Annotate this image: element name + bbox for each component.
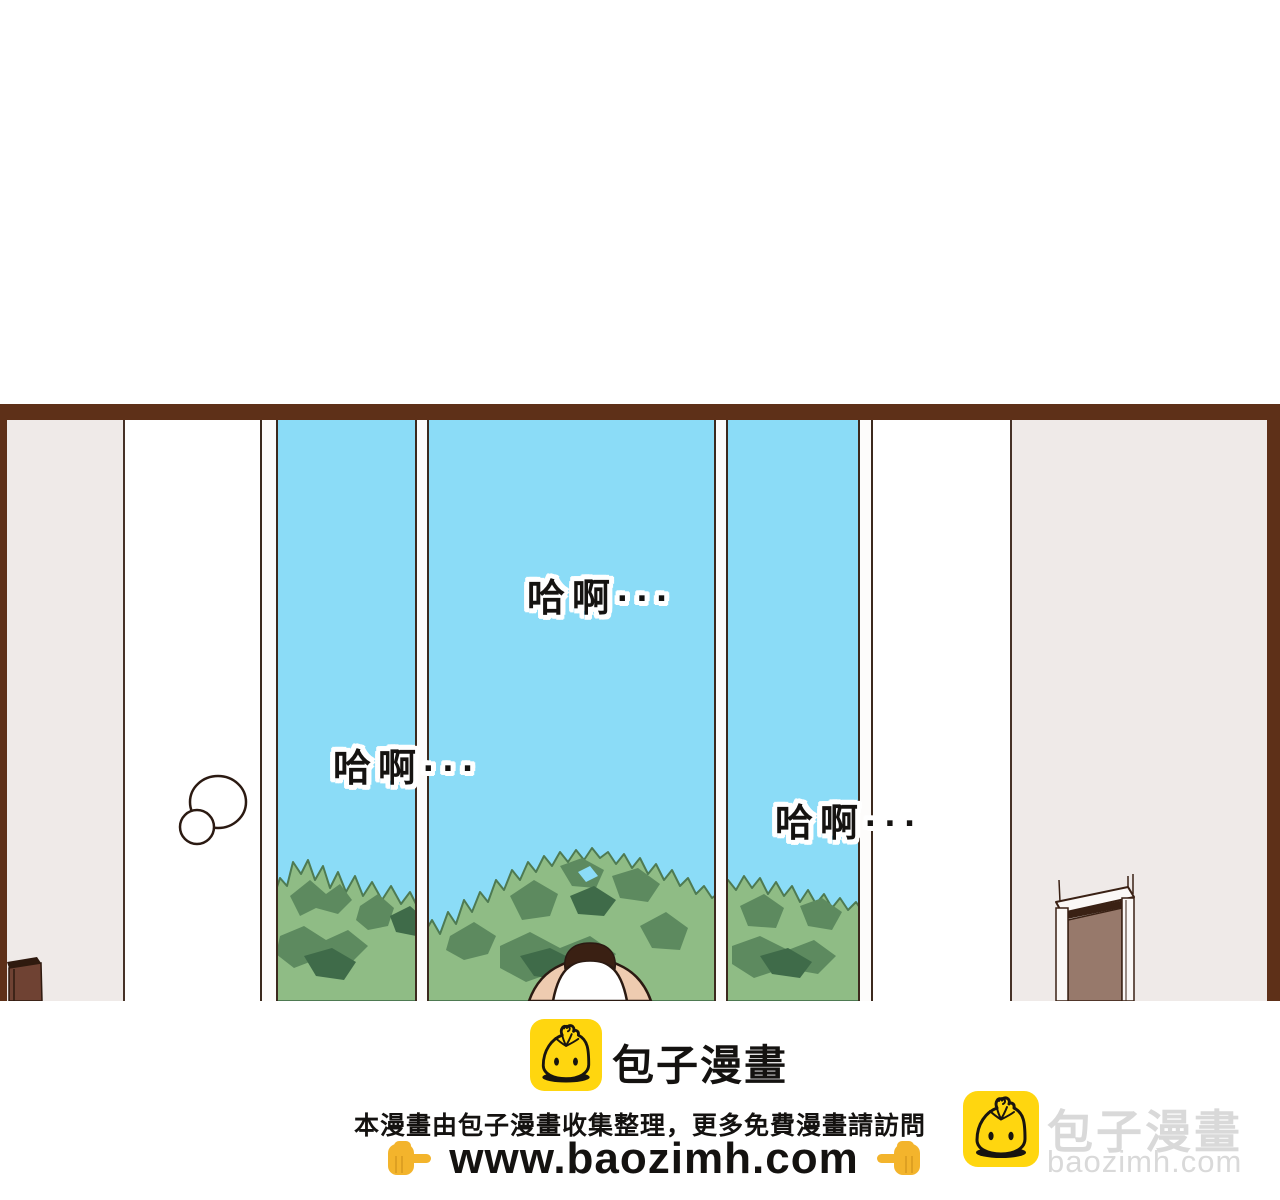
hand-pointing-left-icon (877, 1140, 923, 1178)
person-back-view (523, 938, 657, 1001)
sfx-yawn-2: 哈啊··· (333, 748, 482, 792)
top-whitespace (0, 0, 1280, 404)
watermark-domain: baozimh.com (1047, 1144, 1242, 1180)
window-frame (858, 420, 873, 1001)
panel-border-left (0, 404, 7, 1001)
door (1048, 870, 1142, 1001)
comic-panel: 哈啊··· 哈啊··· 哈啊··· (0, 404, 1280, 1001)
panel-border-right (1267, 404, 1280, 1001)
site-url: www.baozimh.com (449, 1134, 858, 1184)
brand-name: 包子漫畫 (612, 1032, 788, 1093)
cabinet (5, 949, 43, 1001)
comic-page: 哈啊··· 哈啊··· 哈啊··· 包子漫畫 本漫畫由包子漫畫收集整理，更多免費… (0, 0, 1280, 1200)
hand-pointing-right-icon (385, 1140, 431, 1178)
thought-bubble (172, 768, 252, 850)
window-frame (714, 420, 728, 1001)
sfx-yawn-1: 哈啊··· (527, 578, 676, 622)
window-frame (260, 420, 278, 1001)
window-frame (415, 420, 429, 1001)
panel-border-top (0, 404, 1280, 420)
baozi-bun-icon (963, 1090, 1039, 1168)
sfx-yawn-3: 哈啊··· (775, 803, 924, 847)
left-wall (7, 420, 125, 1001)
baozi-bun-icon (530, 1018, 602, 1092)
